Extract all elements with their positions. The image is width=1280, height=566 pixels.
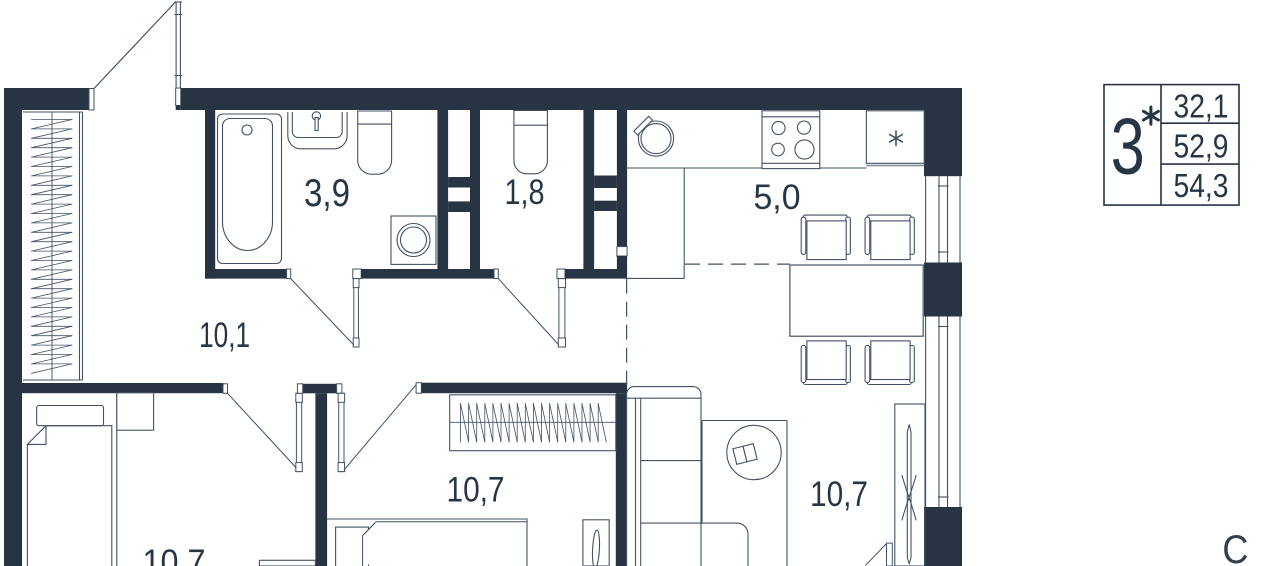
svg-text:32,1: 32,1 (1174, 88, 1229, 125)
svg-text:10,7: 10,7 (810, 475, 868, 514)
svg-text:С: С (1222, 528, 1248, 566)
svg-text:54,3: 54,3 (1174, 167, 1229, 204)
svg-text:1,8: 1,8 (505, 173, 545, 212)
svg-text:10,7: 10,7 (447, 471, 505, 510)
svg-text:52,9: 52,9 (1174, 127, 1229, 164)
svg-text:3: 3 (1111, 101, 1145, 190)
svg-text:5,0: 5,0 (754, 178, 801, 217)
svg-text:10,7: 10,7 (143, 543, 206, 566)
svg-text:10,1: 10,1 (199, 316, 250, 355)
svg-text:3,9: 3,9 (304, 172, 350, 215)
